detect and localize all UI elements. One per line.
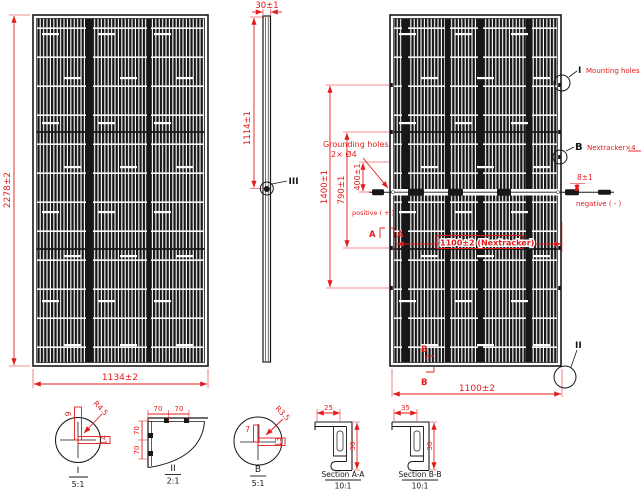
side-view — [263, 16, 271, 362]
side-mount-lug — [264, 186, 270, 192]
detail-i-length-label: 14 — [100, 435, 109, 445]
section-a-marker-left: A — [369, 230, 376, 240]
nextracker-callout: B Nextracker×4 — [553, 142, 641, 164]
detail-i-scale: 5:1 — [72, 480, 85, 489]
detail-b-ref: B — [255, 465, 261, 475]
section-aa: 25 30 Section A-A 10:1 — [315, 404, 365, 491]
side-thickness-dimension: 30±1 — [252, 1, 282, 15]
detail-i: 9 R4.5 14 I 5:1 — [56, 399, 111, 489]
drawing-canvas: 2278±2 1134±2 30±1 1114±1 III — [0, 0, 641, 492]
detail-b-width-label: 7 — [245, 425, 250, 434]
section-a-markers: A A — [369, 228, 404, 240]
side-mount-dimension: 1114±1 — [243, 17, 264, 189]
detail-ii-top1-label: 70 — [154, 405, 163, 413]
grounding-hole-right — [556, 191, 559, 194]
grounding-title: Grounding holes — [323, 140, 389, 149]
front-height-dimension: 2278±2 — [3, 15, 30, 366]
mounting-callout-label: Mounting holes×8 — [586, 67, 641, 75]
detail-ii-left2-label: 70 — [133, 446, 141, 455]
back-width-label: 1100±2 — [459, 384, 495, 394]
back-inner-span-label: 790±1 — [337, 176, 347, 205]
grounding-spec: 2× Ø4 — [331, 149, 357, 159]
detail-b: 7 R3.5 13 B 5:1 — [234, 404, 292, 488]
section-aa-scale: 10:1 — [335, 482, 352, 491]
connector-right-2 — [598, 190, 611, 195]
mounting-callout-ref: I — [578, 66, 581, 76]
section-bb-width-label: 35 — [401, 404, 410, 412]
section-aa-width-label: 25 — [324, 404, 333, 412]
section-bb-title: Section B-B — [399, 470, 442, 479]
back-jbox-offset-label: 400±1 — [353, 163, 362, 190]
edge-offset-dimension: 8±1 — [570, 173, 593, 192]
back-jbox-offset-dimension: 400±1 — [353, 162, 389, 192]
detail-ii-ref: II — [170, 464, 175, 474]
connector-left — [372, 189, 384, 195]
detail-ii: 70 70 70 70 II 2:1 — [133, 405, 208, 486]
grounding-hole-left — [391, 191, 394, 194]
side-mount-offset-label: 1114±1 — [243, 111, 253, 145]
section-bb-height-label: 30 — [426, 442, 434, 451]
section-b-marker-top: B — [421, 345, 427, 355]
negative-terminal-label: negative ( - ) — [576, 200, 622, 208]
section-bb-scale: 10:1 — [412, 482, 429, 491]
nextracker-callout-ref: B — [575, 142, 583, 153]
section-aa-height-label: 30 — [349, 442, 357, 451]
detail-b-radius-label: R3.5 — [274, 404, 293, 423]
detail-i-ref: I — [77, 466, 80, 476]
solar-panel-technical-drawing: 2278±2 1134±2 30±1 1114±1 III — [0, 0, 641, 492]
corner-callout-ref: II — [575, 341, 582, 351]
positive-terminal-label: positive ( + ) — [352, 209, 394, 217]
back-mount-span-label: 1400±1 — [320, 170, 330, 204]
section-b-marker-bottom: B — [421, 378, 427, 388]
mounting-holes-callout: I Mounting holes×8 — [554, 66, 641, 91]
detail-b-length-label: 13 — [274, 437, 283, 447]
detail-ii-scale: 2:1 — [167, 477, 180, 486]
front-view-panel — [33, 15, 208, 366]
section-aa-title: Section A-A — [322, 470, 366, 479]
edge-offset-label: 8±1 — [577, 173, 593, 182]
front-width-label: 1134±2 — [102, 373, 138, 383]
side-thickness-label: 30±1 — [255, 1, 278, 11]
detail-ii-left1-label: 70 — [133, 426, 141, 435]
detail-i-width-label: 9 — [64, 411, 73, 416]
detail-b-scale: 5:1 — [252, 479, 265, 488]
tracker-span-label: 1100±2 (Nextracker) — [440, 239, 534, 248]
back-width-dimension: 1100±2 — [392, 369, 562, 397]
section-bb: 35 30 Section B-B 10:1 — [392, 404, 441, 491]
front-width-dimension: 1134±2 — [33, 369, 208, 388]
front-height-label: 2278±2 — [3, 172, 13, 208]
detail-ii-top2-label: 70 — [175, 405, 184, 413]
side-detail-ref: III — [289, 177, 299, 187]
section-a-marker-right: A — [397, 230, 404, 240]
